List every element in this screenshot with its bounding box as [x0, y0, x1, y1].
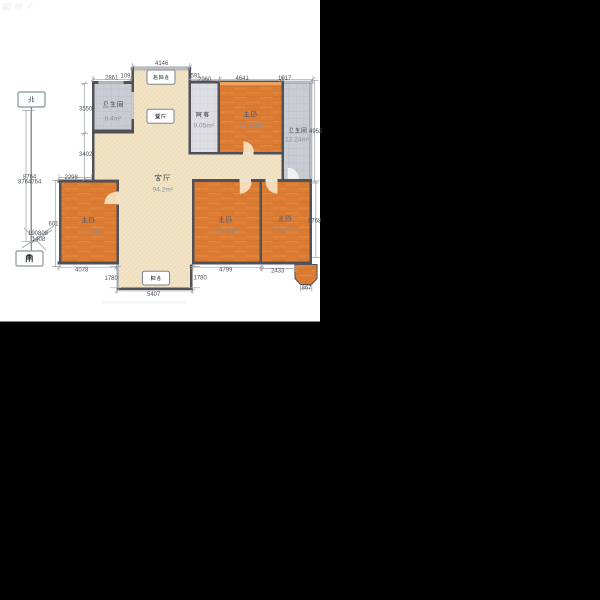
svg-text:5407: 5407	[147, 292, 161, 298]
svg-text:2298: 2298	[65, 175, 79, 181]
svg-text:867: 867	[302, 286, 313, 292]
svg-text:3550: 3550	[79, 107, 93, 113]
svg-text:4078: 4078	[75, 268, 89, 274]
svg-text:15.33m²: 15.33m²	[78, 229, 103, 236]
svg-text:4641: 4641	[236, 76, 250, 82]
svg-text:9.4m²: 9.4m²	[105, 116, 123, 123]
svg-text:2861: 2861	[105, 76, 119, 82]
svg-text:94.2m²: 94.2m²	[153, 187, 174, 194]
svg-text:3402: 3402	[79, 152, 93, 158]
svg-text:12.21m²: 12.21m²	[239, 122, 264, 129]
svg-text:1091: 1091	[121, 74, 135, 80]
svg-text:4146: 4146	[155, 61, 169, 67]
svg-text:4952: 4952	[309, 129, 323, 135]
svg-text:4799: 4799	[219, 268, 233, 274]
svg-text:1917: 1917	[278, 76, 292, 82]
svg-text:9.05m²: 9.05m²	[194, 123, 215, 130]
svg-text:17.58m²: 17.58m²	[216, 227, 241, 234]
svg-text:2433: 2433	[271, 269, 285, 275]
svg-text:1780: 1780	[194, 276, 208, 282]
svg-text:12.24m²: 12.24m²	[285, 137, 310, 144]
svg-text:1780: 1780	[105, 276, 119, 282]
svg-text:601b: 601b	[49, 222, 63, 228]
svg-text:2960: 2960	[198, 77, 212, 83]
svg-text:1408: 1408	[32, 237, 46, 243]
svg-text:8764764: 8764764	[18, 180, 42, 186]
svg-text:9.36m²: 9.36m²	[274, 227, 295, 234]
svg-text:5768: 5768	[308, 219, 322, 225]
